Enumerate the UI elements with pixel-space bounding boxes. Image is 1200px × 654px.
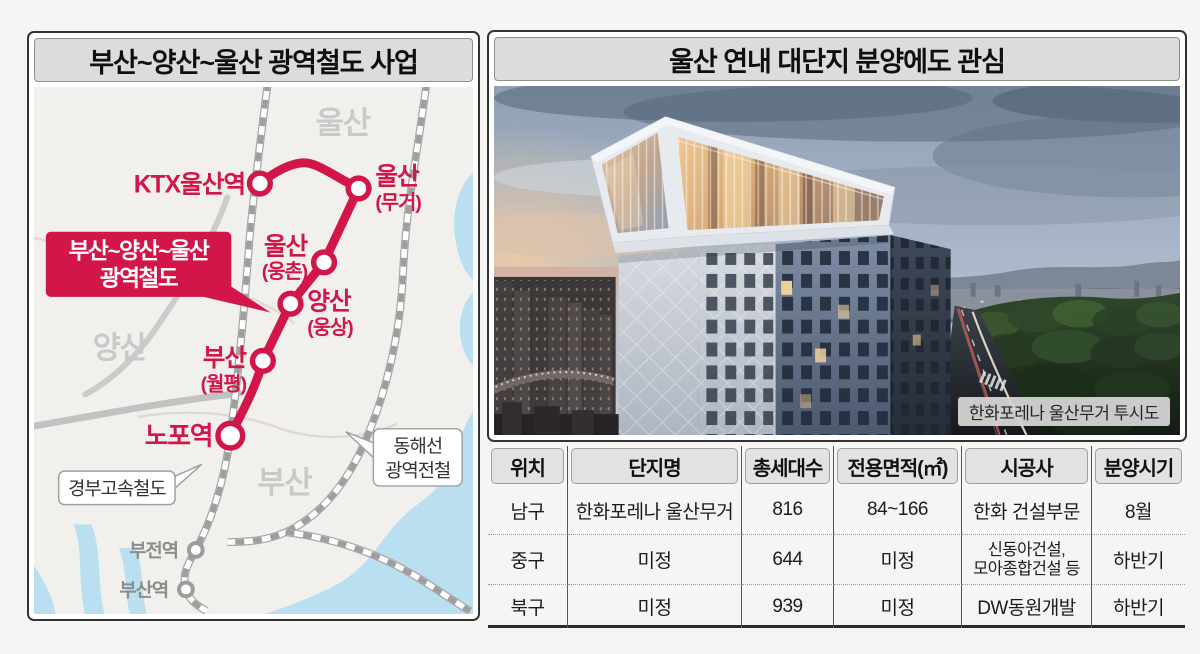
right-panel-title: 울산 연내 대단지 분양에도 관심 bbox=[494, 37, 1180, 81]
table-cell: 미정 bbox=[834, 534, 962, 584]
table-cell: 북구 bbox=[488, 584, 568, 628]
table-cell: 미정 bbox=[834, 584, 962, 628]
dusk-city-left bbox=[494, 267, 624, 435]
station-sublabel-wolpyeong: (월평) bbox=[201, 373, 247, 395]
station-sublabel-mugeo: (무거) bbox=[375, 192, 421, 214]
table-cell: 816 bbox=[742, 486, 834, 534]
table-header-date: 분양시기 bbox=[1092, 446, 1185, 486]
left-panel-title: 부산~양산~울산 광역철도 사업 bbox=[34, 38, 473, 82]
table-cell: DW동원개발 bbox=[962, 584, 1092, 628]
table-cell: 8월 bbox=[1092, 486, 1185, 534]
station-sublabel-ungsang: (웅상) bbox=[307, 317, 353, 339]
table-header-loc: 위치 bbox=[488, 446, 568, 486]
rail-map-panel: 부산~양산~울산 광역철도 사업 bbox=[27, 31, 480, 621]
table-cell: 신동아건설, 모아종합건설 등 bbox=[962, 534, 1092, 584]
table-cell: 하반기 bbox=[1092, 584, 1185, 628]
table-cell: 한화 건설부문 bbox=[962, 486, 1092, 534]
table-cell: 남구 bbox=[488, 486, 568, 534]
table-cell: 중구 bbox=[488, 534, 568, 584]
region-label-ulsan: 울산 bbox=[316, 106, 371, 140]
donghae-callout-label-2: 광역전철 bbox=[385, 460, 450, 481]
table-cell: 미정 bbox=[568, 584, 742, 628]
table-header-builder: 시공사 bbox=[962, 446, 1092, 486]
region-label-busan: 부산 bbox=[257, 466, 312, 500]
table-cell: 하반기 bbox=[1092, 534, 1185, 584]
rail-map: 울산 양산 부산 경부고속철도 동해선 광역전철 bbox=[34, 87, 473, 614]
table-cell: 644 bbox=[742, 534, 834, 584]
station-label-yangsan-ungsang: 양산 bbox=[307, 288, 352, 316]
table-cell: 미정 bbox=[568, 534, 742, 584]
region-label-yangsan: 양산 bbox=[93, 331, 148, 365]
table-header-units: 총세대수 bbox=[742, 446, 834, 486]
station-label-busanstation: 부산역 bbox=[119, 579, 168, 600]
table-cell: 939 bbox=[742, 584, 834, 628]
station-label-nopo: 노포역 bbox=[145, 422, 213, 451]
apartment-tower bbox=[619, 235, 951, 435]
photo-svg bbox=[494, 86, 1180, 435]
table-cell: 한화포레나 울산무거 bbox=[568, 486, 742, 534]
photo-caption: 한화포레나 울산무거 투시도 bbox=[958, 397, 1170, 426]
apartment-rendering-photo: 한화포레나 울산무거 투시도 bbox=[494, 86, 1180, 435]
station-label-busan-wolpyeong: 부산 bbox=[203, 344, 248, 372]
apartment-sale-table: 위치 단지명 총세대수 전용면적(㎡) 시공사 분양시기 남구 한화포레나 울산… bbox=[488, 446, 1185, 628]
gyeongbu-callout-label: 경부고속철도 bbox=[68, 478, 166, 499]
table-header-area: 전용면적(㎡) bbox=[834, 446, 962, 486]
project-callout-line1: 부산~양산~울산 bbox=[69, 237, 210, 263]
table-header-name: 단지명 bbox=[568, 446, 742, 486]
rail-map-svg: 울산 양산 부산 경부고속철도 동해선 광역전철 bbox=[34, 87, 473, 614]
station-label-ktx-ulsan: KTX울산역 bbox=[134, 170, 245, 198]
station-label-bujeon: 부전역 bbox=[129, 540, 178, 561]
station-sublabel-ungchon: (웅촌) bbox=[262, 261, 308, 283]
table-cell: 84~166 bbox=[834, 486, 962, 534]
donghae-callout-label-1: 동해선 bbox=[393, 435, 442, 456]
station-label-ulsan-ungchon: 울산 bbox=[264, 232, 309, 260]
station-label-ulsan-mugeo: 울산 bbox=[375, 163, 420, 191]
project-callout-line2: 광역철도 bbox=[100, 265, 179, 291]
apartment-photo-panel: 울산 연내 대단지 분양에도 관심 bbox=[487, 30, 1187, 442]
lit-window bbox=[781, 281, 792, 295]
